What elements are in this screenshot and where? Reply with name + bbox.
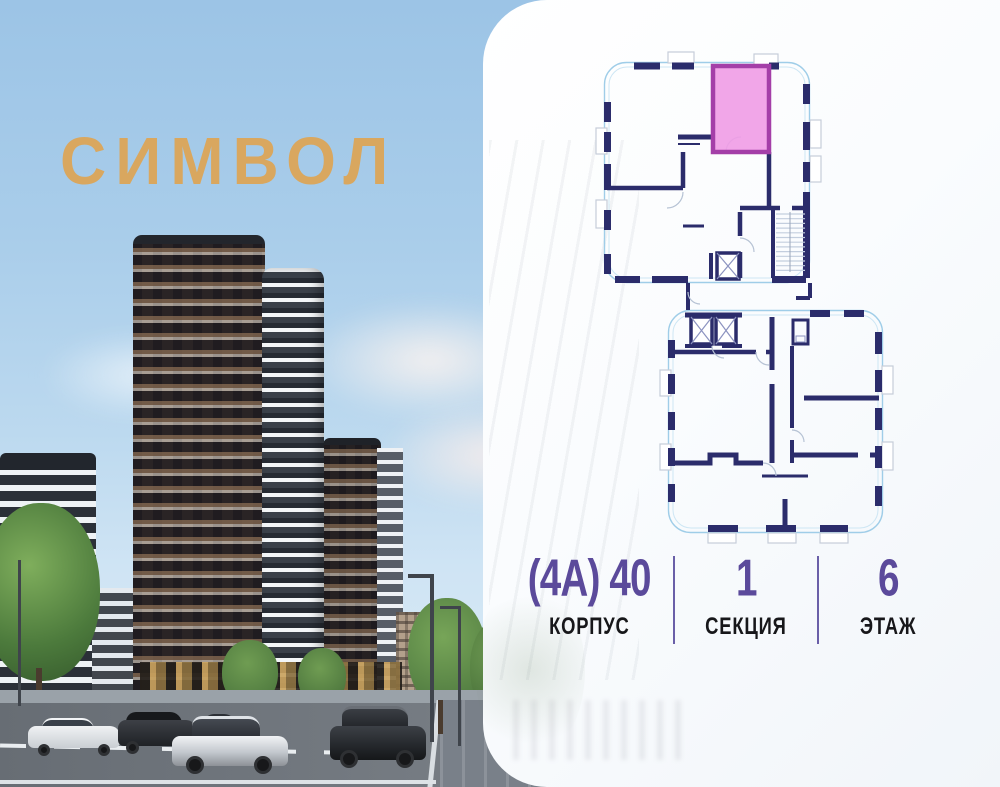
upper-section-outline bbox=[605, 63, 810, 283]
street-lamp-arm bbox=[408, 574, 434, 578]
info-building: (4A) 40 КОРПУС bbox=[505, 552, 673, 644]
details-panel: (4A) 40 КОРПУС 1 СЕКЦИЯ 6 ЭТАЖ bbox=[483, 0, 1000, 787]
floor-label: ЭТАЖ bbox=[860, 612, 916, 640]
car-silver-sedan bbox=[172, 714, 288, 774]
connector-walls bbox=[688, 283, 810, 310]
car-wheel bbox=[186, 756, 204, 774]
floor-value: 6 bbox=[878, 552, 899, 604]
page: СИМВОЛ bbox=[0, 0, 1000, 787]
building-value: (4A) 40 bbox=[528, 552, 651, 604]
street-lamp-arm bbox=[440, 606, 461, 609]
interior-walls-lower bbox=[671, 315, 879, 529]
car-wheel bbox=[98, 744, 110, 756]
car-wheel bbox=[254, 756, 272, 774]
ghost-people bbox=[513, 700, 693, 760]
car-dark-minivan bbox=[330, 706, 426, 768]
stairs bbox=[776, 212, 805, 272]
unit-info-row: (4A) 40 КОРПУС 1 СЕКЦИЯ 6 ЭТАЖ bbox=[505, 552, 957, 644]
car-wheel bbox=[126, 741, 139, 754]
section-label: СЕКЦИЯ bbox=[705, 612, 786, 640]
building-label: КОРПУС bbox=[549, 612, 630, 640]
lane-marking bbox=[0, 780, 436, 784]
street-lamp bbox=[18, 560, 21, 706]
car-wheel bbox=[396, 750, 414, 768]
info-section: 1 СЕКЦИЯ bbox=[675, 552, 817, 644]
interior-walls-upper bbox=[607, 137, 806, 279]
parked-car bbox=[28, 718, 120, 756]
brand-logo: СИМВОЛ bbox=[60, 123, 460, 200]
floor-plan bbox=[560, 40, 920, 560]
section-value: 1 bbox=[736, 552, 757, 604]
info-floor: 6 ЭТАЖ bbox=[819, 552, 957, 644]
car-wheel bbox=[340, 750, 358, 768]
tree-trunk bbox=[438, 700, 443, 734]
highlighted-unit[interactable] bbox=[713, 66, 769, 152]
car-wheel bbox=[38, 744, 50, 756]
street-lamp bbox=[430, 574, 434, 742]
street-lamp bbox=[458, 606, 461, 746]
main-tower-glass bbox=[262, 268, 324, 713]
